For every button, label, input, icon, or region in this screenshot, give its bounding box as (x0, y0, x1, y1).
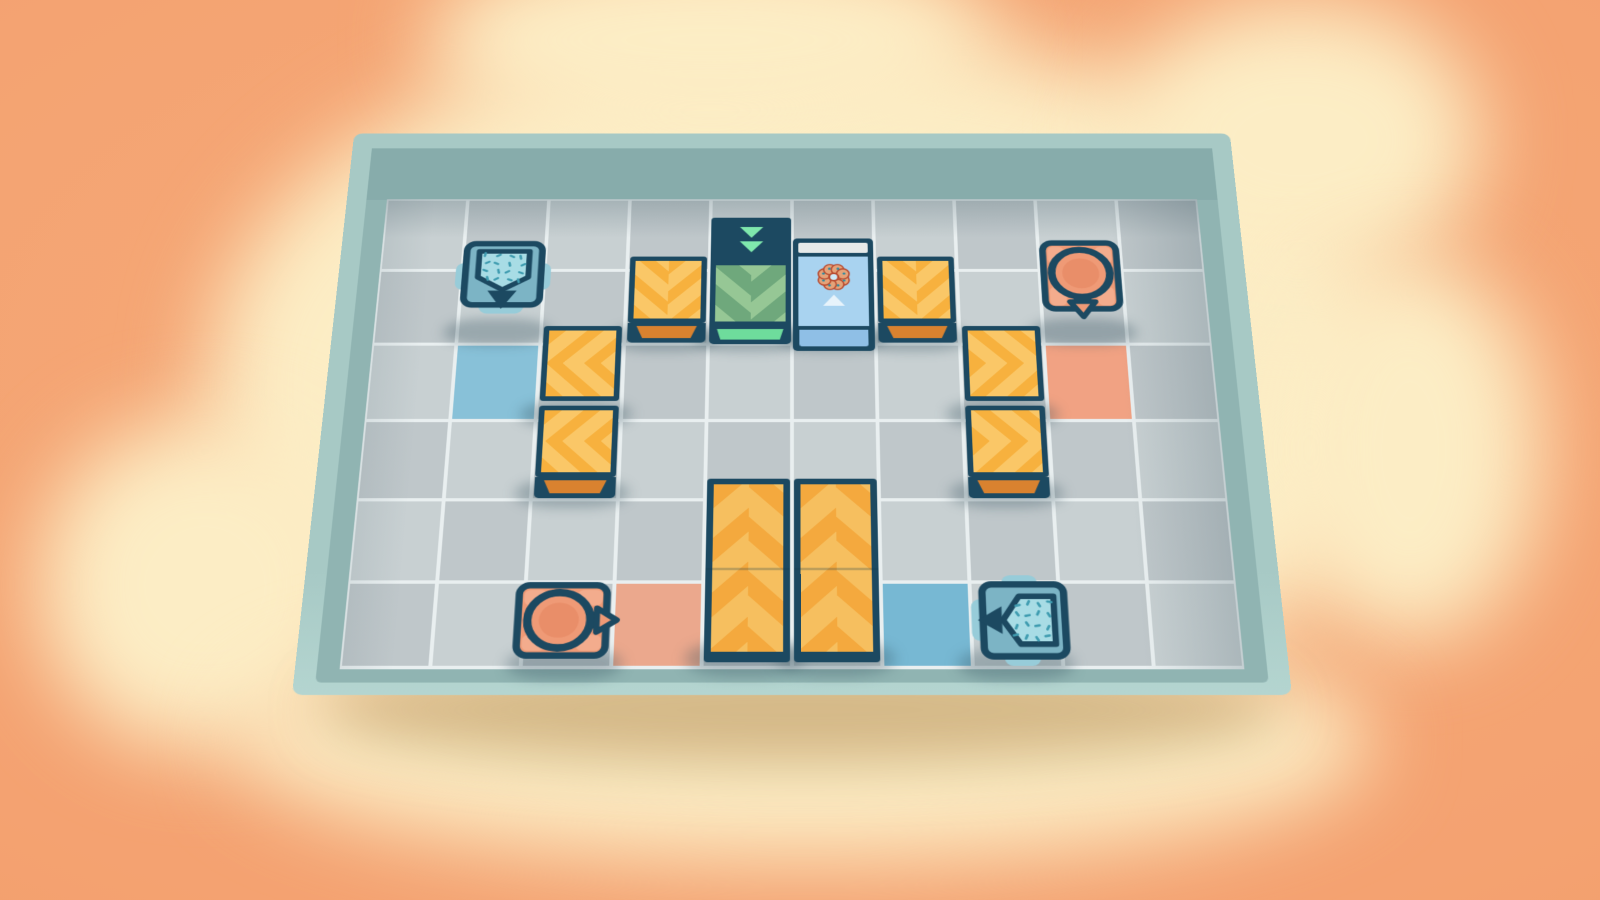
frosting-machine-down[interactable] (1030, 238, 1133, 324)
green-gate[interactable] (709, 218, 791, 344)
crate-front-face (534, 477, 616, 498)
crate-top-face (965, 406, 1049, 477)
up-arrow-icon (823, 295, 845, 306)
frosting-machine-graphic (1030, 238, 1133, 324)
crate-top-face (877, 257, 956, 323)
tall-crate-seam (705, 568, 790, 571)
frosting-machine-right[interactable] (508, 574, 628, 666)
down-arrow-icon (739, 241, 763, 252)
crate-top-face (540, 326, 623, 401)
green-gate-face (709, 261, 791, 326)
game-screenshot: { "scene": { "description": "top-down pu… (0, 0, 1600, 900)
crate-left[interactable] (534, 406, 619, 499)
tall-crate-up[interactable] (794, 479, 880, 663)
crate-front-face (627, 323, 706, 343)
crate-down[interactable] (877, 257, 957, 343)
tall-crate-up[interactable] (704, 479, 790, 663)
sprinkle-machine-down[interactable] (451, 238, 554, 324)
donut-tile-face (798, 257, 869, 326)
crate-right[interactable] (965, 406, 1050, 499)
tall-crate-seam (794, 568, 879, 571)
sprinkle-machine-left[interactable] (956, 574, 1076, 666)
scene (0, 0, 1600, 900)
donut-tile-front (799, 330, 868, 347)
double-down-arrows-icon (711, 218, 791, 261)
crate-front-panel (974, 480, 1044, 493)
crate-left[interactable] (540, 326, 623, 401)
frosting-machine-graphic (508, 574, 628, 666)
donut-icon (815, 262, 852, 291)
donut-dispenser-tile[interactable] (793, 238, 875, 350)
spout-triangle-icon (596, 608, 617, 632)
sprinkle-machine-graphic (451, 238, 554, 324)
game-board (292, 133, 1292, 695)
crate-down[interactable] (627, 257, 707, 343)
crate-front-panel (884, 326, 951, 338)
crate-right[interactable] (962, 326, 1045, 401)
down-arrow-icon (739, 227, 762, 238)
crate-front-face (878, 323, 957, 343)
entities-layer (292, 133, 1292, 695)
crate-top-face (962, 326, 1045, 401)
crate-top-face (628, 257, 707, 323)
dispenser-slot (798, 243, 867, 253)
green-gate-front-panel (715, 329, 786, 340)
tall-crate-top-face (794, 479, 880, 663)
green-gate-front (709, 326, 791, 344)
spout-triangle-icon (1070, 302, 1097, 317)
tall-crate-top-face (704, 479, 790, 663)
crate-top-face (535, 406, 619, 477)
crate-front-panel (633, 326, 700, 338)
sprinkle-machine-graphic (956, 574, 1076, 666)
crate-front-face (968, 477, 1050, 498)
crate-front-panel (540, 480, 610, 493)
